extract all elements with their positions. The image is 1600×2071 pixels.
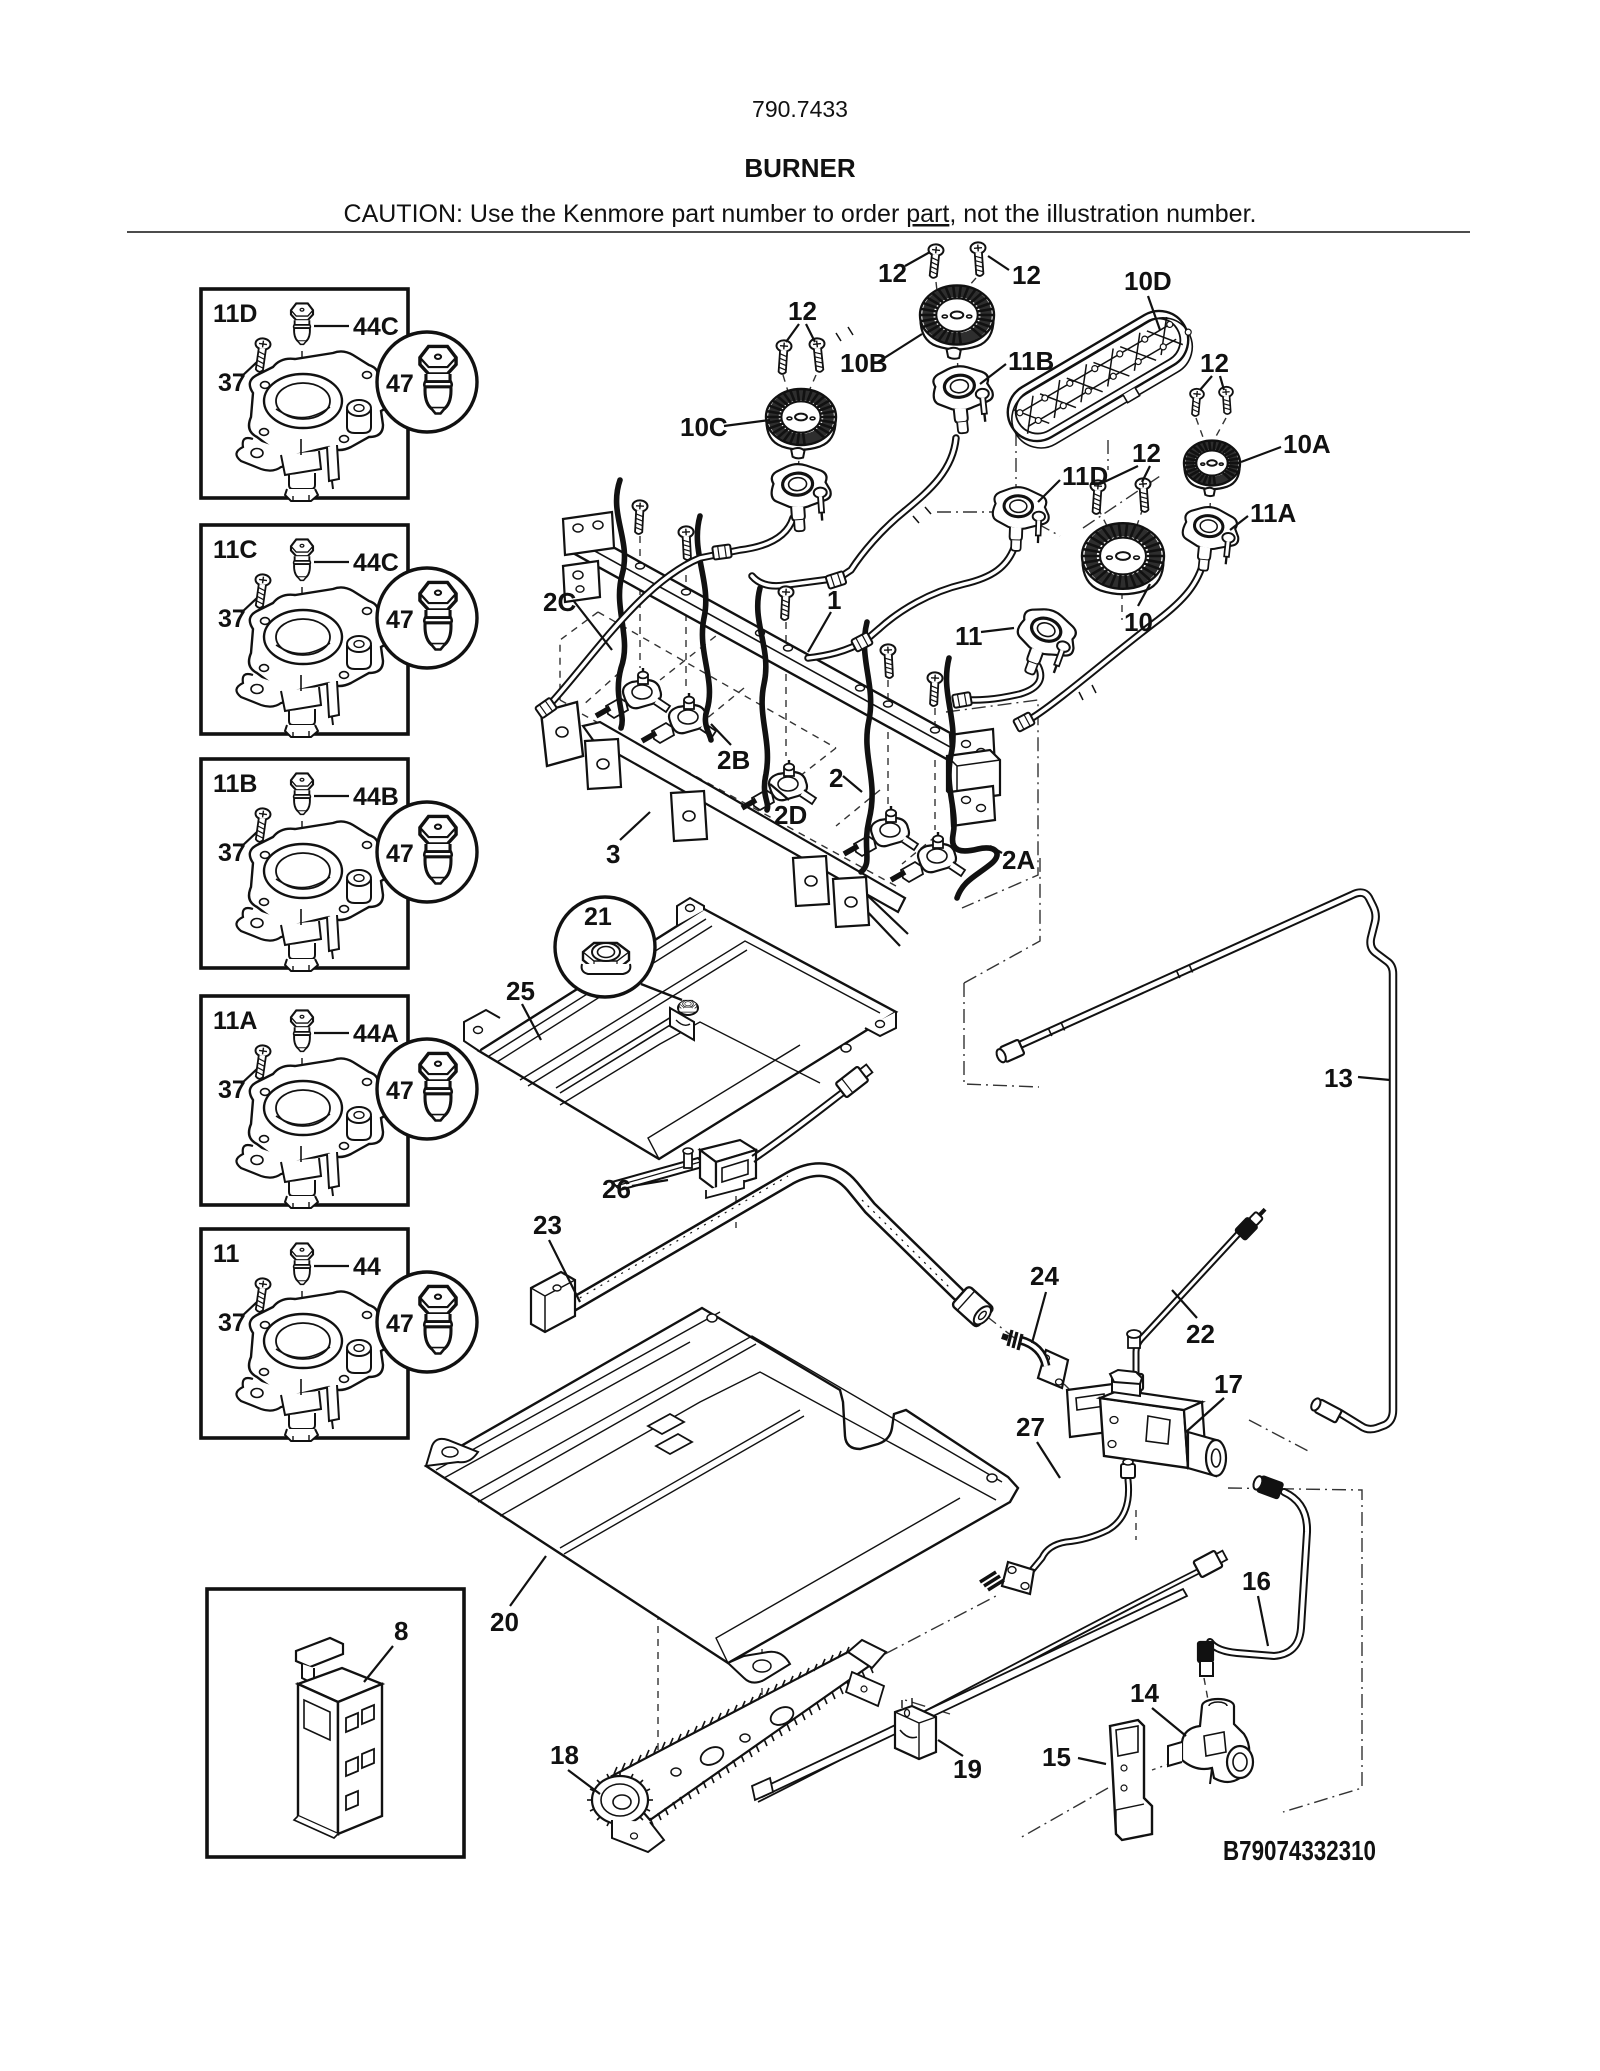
svg-text:2C: 2C <box>543 587 576 617</box>
svg-text:20: 20 <box>490 1607 519 1637</box>
svg-text:26: 26 <box>602 1174 631 1204</box>
svg-text:2: 2 <box>829 763 843 793</box>
svg-text:44A: 44A <box>353 1020 399 1048</box>
svg-text:12: 12 <box>878 258 907 288</box>
svg-text:11: 11 <box>955 621 983 651</box>
svg-text:47: 47 <box>386 1310 414 1338</box>
svg-text:37: 37 <box>218 605 246 633</box>
svg-text:2B: 2B <box>717 745 750 775</box>
svg-text:11D: 11D <box>213 300 257 328</box>
svg-text:2A: 2A <box>1002 845 1035 875</box>
svg-text:CAUTION: Use the Kenmore part: CAUTION: Use the Kenmore part number to … <box>344 200 1257 228</box>
svg-text:47: 47 <box>386 606 414 634</box>
svg-text:12: 12 <box>788 296 817 326</box>
svg-text:10C: 10C <box>680 412 728 442</box>
svg-text:21: 21 <box>584 903 612 931</box>
svg-text:37: 37 <box>218 839 246 867</box>
svg-text:11D: 11D <box>1062 461 1108 491</box>
svg-text:10A: 10A <box>1283 429 1331 459</box>
svg-text:12: 12 <box>1012 260 1041 290</box>
svg-text:37: 37 <box>218 1076 246 1104</box>
svg-text:23: 23 <box>533 1210 562 1240</box>
svg-text:3: 3 <box>606 839 620 869</box>
svg-text:13: 13 <box>1324 1063 1353 1093</box>
svg-text:44: 44 <box>353 1253 381 1281</box>
svg-text:1: 1 <box>827 585 841 615</box>
svg-text:10D: 10D <box>1124 266 1172 296</box>
svg-text:44C: 44C <box>353 549 399 577</box>
svg-text:47: 47 <box>386 1077 414 1105</box>
svg-text:25: 25 <box>506 976 535 1006</box>
svg-text:11C: 11C <box>213 536 257 564</box>
svg-text:47: 47 <box>386 370 414 398</box>
svg-text:22: 22 <box>1186 1319 1215 1349</box>
svg-text:B79074332310: B79074332310 <box>1223 1835 1376 1866</box>
svg-text:18: 18 <box>550 1740 579 1770</box>
svg-text:12: 12 <box>1200 348 1229 378</box>
svg-text:11A: 11A <box>1250 498 1296 528</box>
svg-text:10: 10 <box>1124 607 1153 637</box>
svg-text:11B: 11B <box>1008 346 1054 376</box>
svg-text:15: 15 <box>1042 1742 1071 1772</box>
svg-text:19: 19 <box>953 1754 982 1784</box>
svg-text:2D: 2D <box>774 800 807 830</box>
svg-text:BURNER: BURNER <box>744 153 855 183</box>
svg-text:44C: 44C <box>353 313 399 341</box>
svg-text:37: 37 <box>218 369 246 397</box>
svg-text:12: 12 <box>1132 438 1161 468</box>
svg-text:27: 27 <box>1016 1412 1045 1442</box>
svg-text:47: 47 <box>386 840 414 868</box>
svg-text:44B: 44B <box>353 783 399 811</box>
svg-text:8: 8 <box>394 1616 408 1646</box>
svg-text:37: 37 <box>218 1309 246 1337</box>
svg-text:11: 11 <box>213 1240 240 1268</box>
svg-text:14: 14 <box>1130 1678 1159 1708</box>
svg-text:790.7433: 790.7433 <box>752 96 848 122</box>
svg-text:17: 17 <box>1214 1369 1243 1399</box>
svg-text:16: 16 <box>1242 1566 1271 1596</box>
svg-text:11A: 11A <box>213 1007 257 1035</box>
svg-text:11B: 11B <box>213 770 257 798</box>
svg-text:10B: 10B <box>840 348 888 378</box>
svg-text:24: 24 <box>1030 1261 1059 1291</box>
